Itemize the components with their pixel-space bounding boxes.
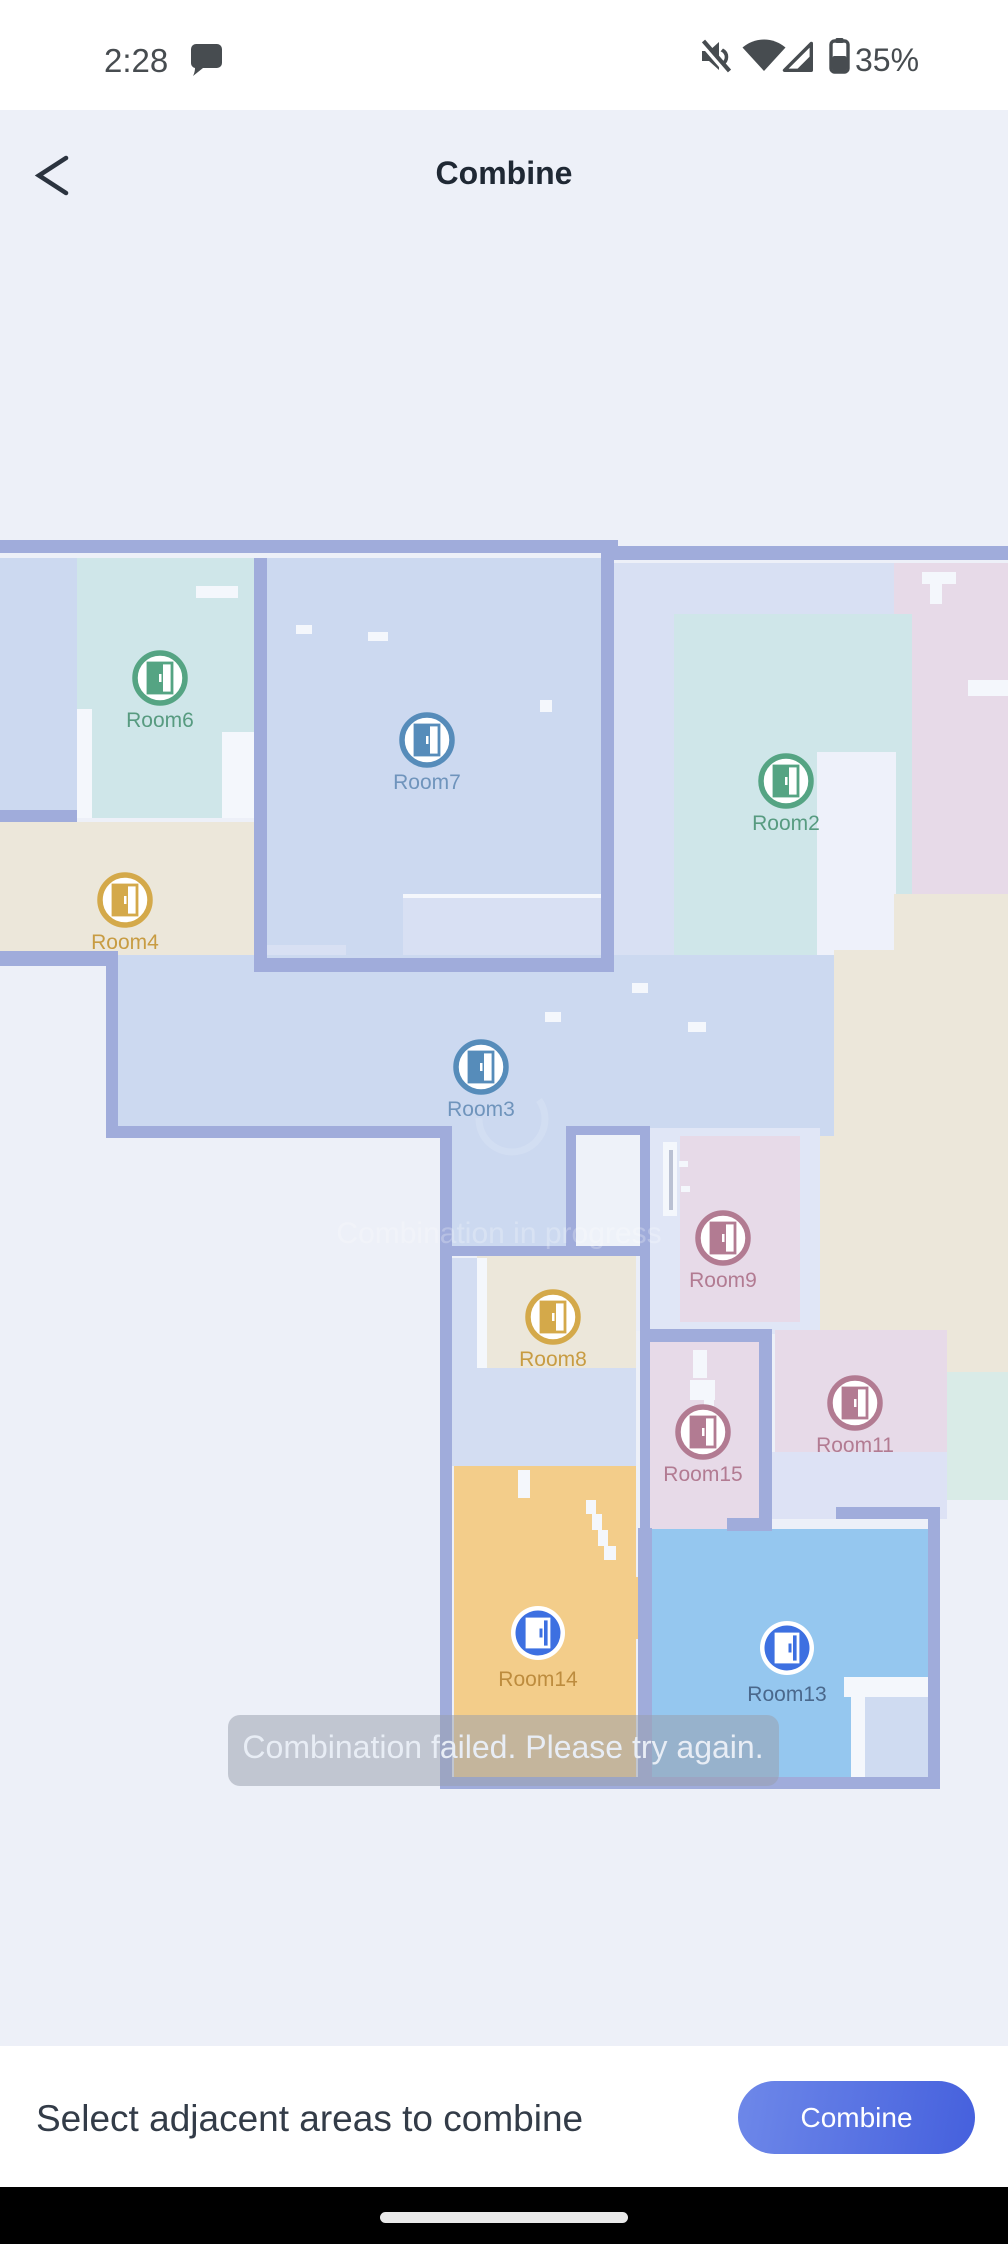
svg-text:Room3: Room3 <box>447 1098 515 1121</box>
svg-text:Room13: Room13 <box>747 1683 826 1706</box>
svg-text:Room4: Room4 <box>91 931 159 954</box>
svg-text:Room7: Room7 <box>393 771 461 794</box>
svg-text:Room11: Room11 <box>816 1434 894 1457</box>
svg-text:Room8: Room8 <box>519 1348 587 1371</box>
svg-text:Room6: Room6 <box>126 709 194 732</box>
svg-text:Room15: Room15 <box>663 1463 742 1486</box>
svg-text:Room9: Room9 <box>689 1269 757 1292</box>
svg-text:Combination failed. Please try: Combination failed. Please try again. <box>242 1729 763 1765</box>
svg-text:Combination in progress: Combination in progress <box>336 1217 661 1250</box>
svg-text:Room14: Room14 <box>498 1668 578 1691</box>
svg-text:Room2: Room2 <box>752 812 820 835</box>
